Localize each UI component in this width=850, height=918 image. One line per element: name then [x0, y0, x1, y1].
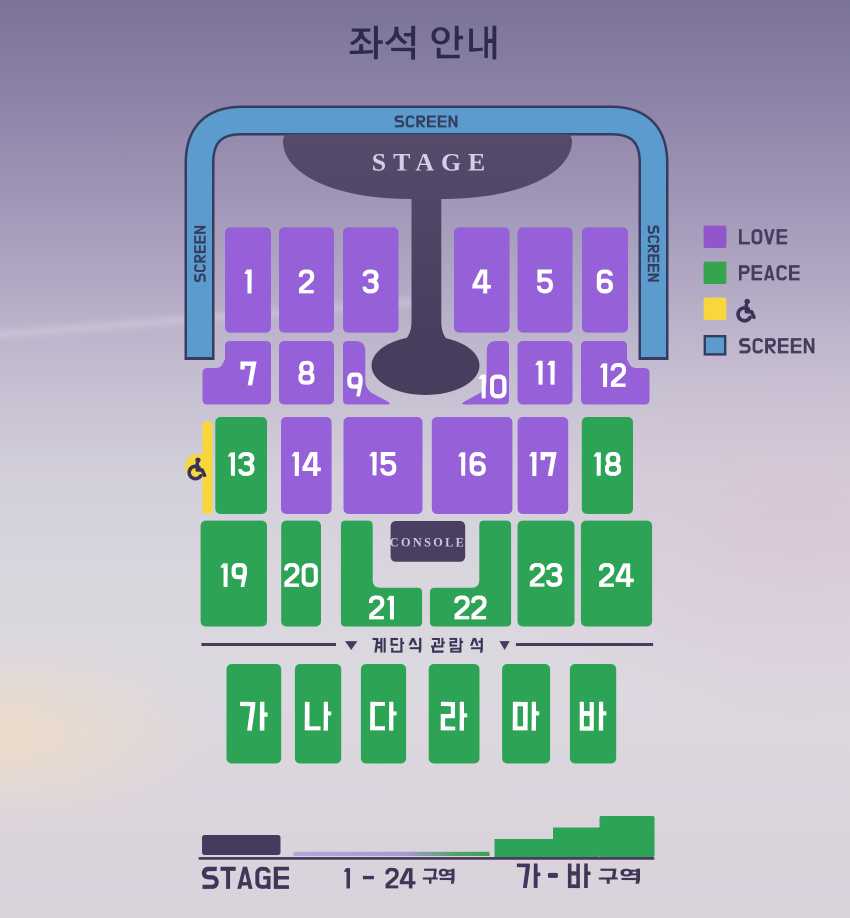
svg-text:STAGE: STAGE	[372, 148, 493, 177]
svg-text:CONSOLE: CONSOLE	[390, 536, 466, 550]
